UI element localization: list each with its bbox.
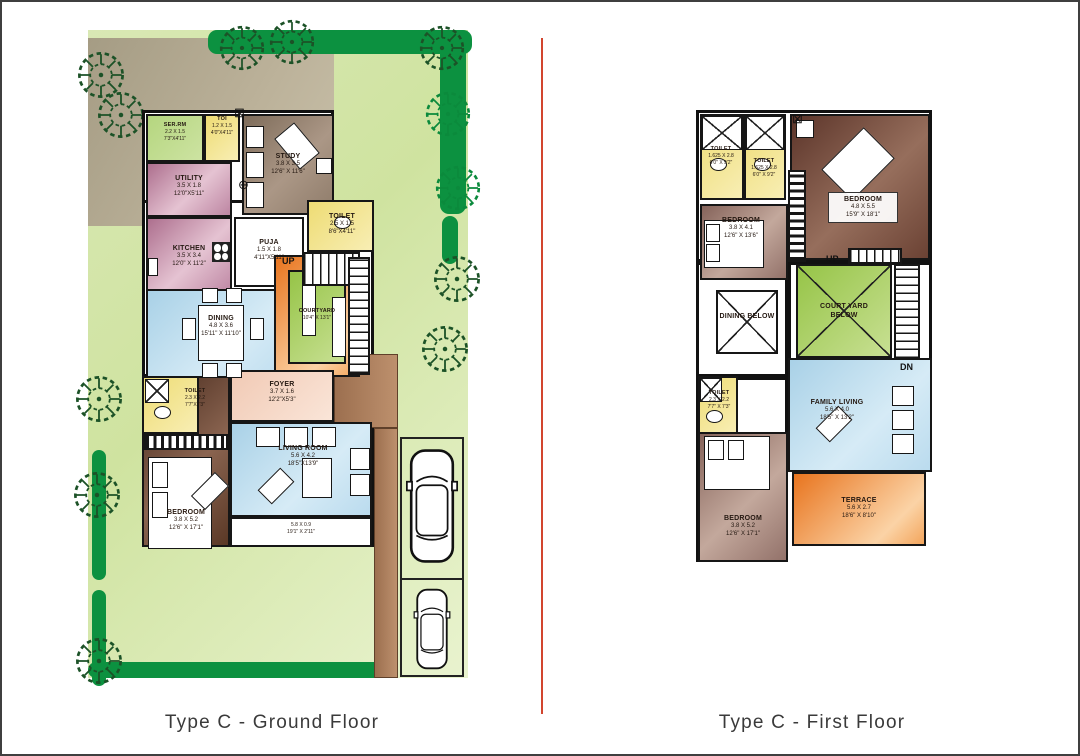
chair-icon — [250, 318, 264, 340]
living-label: LIVING ROOM 5.6 X 4.2 18'5"X13'9" — [272, 444, 334, 469]
toilet-bl-label: TOILET 2.3 X 2.2 7'7"X7'3" — [170, 388, 220, 408]
tree-icon — [266, 16, 318, 68]
study-label: STUDY 3.8 X 3.5 12'6" X 11'6" — [258, 152, 318, 177]
closet-icon — [246, 126, 264, 148]
tree-icon — [422, 88, 474, 140]
tree-icon — [70, 468, 124, 522]
dining-below-void — [716, 290, 778, 354]
fan-icon: ⊕ — [238, 178, 249, 191]
tree-icon — [72, 372, 126, 426]
hedge-bottom — [88, 662, 392, 678]
pillow-icon — [708, 440, 724, 460]
bedroom-ml-label: BEDROOM 3.8 X 4.1 12'6" X 13'6" — [710, 216, 772, 241]
toilet-b-label: TOILET 1.625 X 2.8 6'0" X 9'2" — [740, 158, 788, 178]
shower-icon — [702, 116, 742, 150]
kitchen-label: KITCHEN 3.5 X 3.4 12'0" X 11'2" — [159, 244, 219, 269]
tree-icon — [416, 22, 468, 74]
up-label: UP — [282, 256, 295, 266]
wc-icon — [706, 410, 723, 423]
serrm-label: SER.RM 2.2 X 1.5 7'3"X4'11" — [146, 122, 204, 142]
toilet-c-label: TOILET 2.3 X 2.2 7'7" X 7'3" — [697, 390, 741, 410]
wardrobe — [788, 170, 806, 262]
shower-icon — [145, 379, 169, 403]
window-x-icon: ⊠ — [792, 112, 803, 125]
toilet-a-label: TOILET 1.625 X 2.8 6'0" X 9'2" — [697, 146, 745, 166]
first-floor-caption: Type C - First Floor — [662, 712, 962, 734]
tree-icon — [72, 634, 126, 688]
pillow-icon — [728, 440, 744, 460]
terrace-label: TERRACE 5.6 X 2.7 18'6" X 8'10" — [828, 496, 890, 521]
pillow-icon — [706, 244, 720, 262]
car-icon — [406, 442, 458, 570]
bedroom-b-label: BEDROOM 3.8 X 5.2 12'6" X 17'1" — [712, 514, 774, 539]
dining-below-label: DINING BELOW — [719, 312, 775, 321]
family-living-label: FAMILY LIVING 5.6 X 4.0 18'5" X 13'2" — [804, 398, 870, 423]
up-label: UP — [826, 254, 839, 264]
tree-icon — [430, 252, 484, 306]
tree-icon — [418, 322, 472, 376]
sitout-label: 5.8 X 0.9 19'1" X 2'11" — [230, 522, 372, 535]
foyer-label: FOYER 3.7 X 1.6 12'2"X5'3" — [252, 380, 312, 405]
car-icon — [406, 586, 458, 672]
bedroom-ground-label: BEDROOM 3.8 X 5.2 12'6" X 17'1" — [156, 508, 216, 533]
stairs-flight — [348, 257, 370, 375]
planter-icon — [332, 297, 346, 357]
wardrobe — [144, 434, 228, 450]
sofa-icon — [892, 434, 914, 454]
chair-icon — [226, 288, 242, 303]
courtyard-below-label: COURT YARD BELOW — [814, 302, 874, 320]
sink-icon — [148, 258, 158, 276]
stairs-down — [894, 264, 920, 360]
sofa-icon — [892, 386, 914, 406]
chair-icon — [202, 363, 218, 378]
tree-icon — [216, 22, 268, 74]
utility-label: UTILITY 3.5 X 1.8 12'0"X5'11" — [159, 174, 219, 199]
courtyard-label: COURTYARD 10'4" X 13'1" — [286, 308, 348, 322]
sofa-icon — [350, 448, 370, 470]
dn-label: DN — [900, 362, 913, 372]
sofa-icon — [892, 410, 914, 430]
section-divider — [541, 38, 543, 714]
toilet-right-label: TOILET 2.5 X 1.5 8'6"X4'11" — [312, 212, 372, 237]
stairs-up — [848, 248, 902, 264]
tree-icon — [432, 162, 484, 214]
floorplan-sheet: ⊠ ⊕ SER.RM 2.2 X 1.5 7'3"X4'11" TOI 1.2 … — [0, 0, 1080, 756]
ground-floor-plan: ⊠ ⊕ SER.RM 2.2 X 1.5 7'3"X4'11" TOI 1.2 … — [88, 30, 468, 702]
toi-label: TOI 1.2 X 1.5 4'0"X4'11" — [200, 116, 244, 136]
ground-floor-caption: Type C - Ground Floor — [122, 712, 422, 734]
sofa-icon — [350, 474, 370, 496]
shower-icon — [746, 116, 784, 150]
tree-icon — [94, 88, 148, 142]
dining-label: DINING 4.8 X 3.6 15'11" X 11'10" — [192, 314, 250, 339]
bedroom-tr-label: BEDROOM 4.8 X 5.5 15'9" X 18'1" — [828, 192, 898, 223]
pillow-icon — [152, 462, 168, 488]
first-floor-plan: ⊠ TOILET 1.625 X 2.8 6'0" X 9'2" TOILET … — [696, 110, 932, 572]
side-path — [374, 428, 398, 678]
chair-icon — [226, 363, 242, 378]
wc-icon — [154, 406, 171, 419]
chair-icon — [202, 288, 218, 303]
chair-icon — [316, 158, 332, 174]
car-park-divider — [400, 578, 464, 580]
